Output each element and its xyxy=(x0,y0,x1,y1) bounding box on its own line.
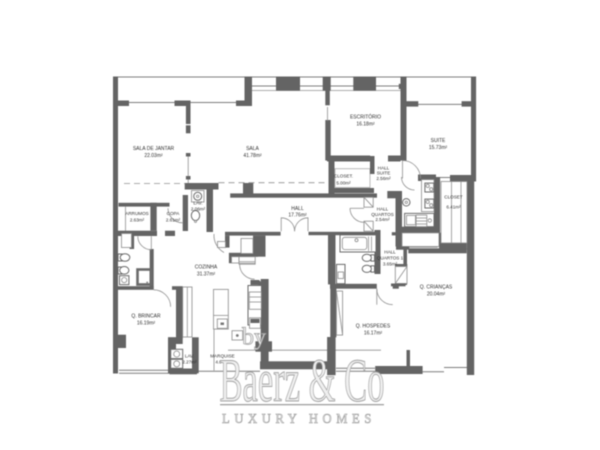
svg-text:Q. CRIANÇAS: Q. CRIANÇAS xyxy=(420,285,453,291)
svg-text:QUARTOS 1: QUARTOS 1 xyxy=(377,256,404,261)
svg-text:COPA: COPA xyxy=(167,211,181,216)
svg-text:2.63m²: 2.63m² xyxy=(130,218,145,223)
svg-text:LUXURY HOMES: LUXURY HOMES xyxy=(222,411,376,426)
svg-text:5.00m²: 5.00m² xyxy=(336,181,351,186)
svg-text:Q. BRINCAR: Q. BRINCAR xyxy=(131,314,161,320)
svg-text:HALL: HALL xyxy=(291,206,304,212)
svg-text:QUARTOS: QUARTOS xyxy=(371,212,394,217)
svg-text:SALA: SALA xyxy=(246,146,259,152)
svg-text:by: by xyxy=(242,325,266,351)
svg-text:41.78m²: 41.78m² xyxy=(243,153,262,159)
svg-text:SALA DE JANTAR: SALA DE JANTAR xyxy=(133,146,175,152)
svg-text:Q. HOSPEDES: Q. HOSPEDES xyxy=(356,324,391,330)
svg-text:LAV.: LAV. xyxy=(185,354,194,359)
svg-text:3.65m²: 3.65m² xyxy=(383,262,398,267)
svg-text:31.37m²: 31.37m² xyxy=(197,272,216,278)
svg-text:16.17m²: 16.17m² xyxy=(364,331,383,337)
svg-text:16.18m²: 16.18m² xyxy=(356,122,375,128)
svg-text:CLOSET.: CLOSET. xyxy=(334,174,353,179)
svg-text:ESCRITÓRIO: ESCRITÓRIO xyxy=(350,114,381,121)
svg-text:15.73m²: 15.73m² xyxy=(429,145,448,151)
svg-text:20.04m²: 20.04m² xyxy=(427,292,446,298)
svg-text:COZINHA: COZINHA xyxy=(195,265,218,271)
svg-text:17.76m²: 17.76m² xyxy=(288,213,307,219)
svg-text:SUITE: SUITE xyxy=(431,138,446,144)
svg-text:SUITE: SUITE xyxy=(377,171,391,176)
svg-text:HALL: HALL xyxy=(384,250,396,255)
svg-text:22.03m²: 22.03m² xyxy=(144,153,163,159)
svg-text:LAV.: LAV. xyxy=(193,201,202,206)
svg-text:2.61m²: 2.61m² xyxy=(166,218,181,223)
svg-text:HALL: HALL xyxy=(377,207,389,212)
svg-text:2.54m²: 2.54m² xyxy=(375,217,390,222)
svg-text:6.41m²: 6.41m² xyxy=(446,205,461,210)
svg-text:2.56m²: 2.56m² xyxy=(376,176,391,181)
svg-text:16.19m²: 16.19m² xyxy=(137,321,156,327)
svg-text:2.06m²: 2.06m² xyxy=(191,207,206,212)
svg-text:ARRUMOS: ARRUMOS xyxy=(125,211,148,216)
svg-text:2.27m²: 2.27m² xyxy=(182,360,197,365)
svg-text:CLOSET: CLOSET xyxy=(444,195,463,200)
